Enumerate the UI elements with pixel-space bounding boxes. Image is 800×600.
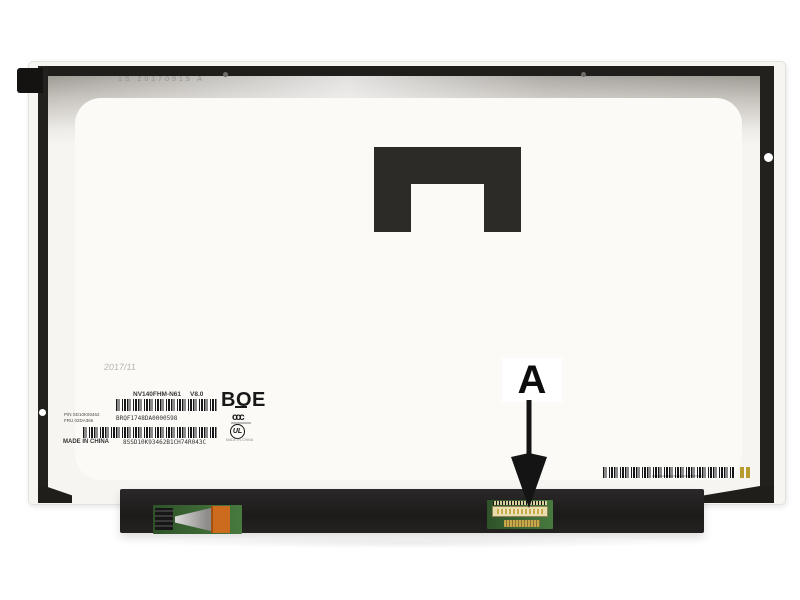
edge-notch-left	[39, 409, 46, 416]
fru-number: FRU 02DA366	[64, 418, 100, 424]
gold-mark-1	[740, 467, 744, 478]
ribbon-cable	[175, 507, 215, 532]
annotation-letter: A	[502, 358, 562, 402]
bracket-shape-top	[374, 147, 521, 184]
gold-mark-2	[746, 467, 750, 478]
barcode-edge-microtext	[652, 475, 702, 477]
screw-dot-left	[223, 72, 228, 77]
top-engraving-text: 1S 20170919 A	[118, 76, 205, 83]
frame-edge-right	[760, 66, 774, 500]
barcode-model	[116, 399, 217, 411]
model-number: NV140FHM-N61	[133, 391, 181, 398]
bar-shadow	[150, 537, 670, 549]
full-serial-text: 8SSD10K93462B1CH74R043C	[123, 439, 206, 446]
serial-number: BRQF1748DA0000598	[116, 415, 177, 422]
ul-made-in-text: MADE IN CHINA	[226, 438, 253, 442]
pn-fru-block: P/N SD10K93462 FRU 02DA366	[64, 412, 100, 424]
frame-edge-left	[38, 66, 48, 500]
flex-cable-orange	[211, 506, 230, 533]
ul-mark-icon: UL	[230, 424, 245, 439]
bracket-shape-right-leg	[484, 184, 521, 232]
pcb-components	[155, 508, 173, 530]
date-stamp: 2017/11	[103, 362, 136, 372]
barcode-serial	[83, 427, 217, 438]
edge-notch-right	[764, 153, 773, 162]
boe-logo: BOE	[221, 389, 266, 412]
made-in-text: MADE IN CHINA	[63, 439, 109, 446]
gold-contact-strip	[504, 520, 540, 527]
frame-edge-top	[38, 66, 774, 76]
label-bottom-row: MADE IN CHINA 8SSD10K93462B1CH74R043C	[63, 439, 206, 446]
bracket-shape-left-leg	[374, 184, 411, 232]
product-photo: 1S 20170919 A 2017/11 NV140FHM-N61 V8.0 …	[0, 0, 800, 600]
mounting-tab-left	[17, 68, 43, 93]
model-version: V8.0	[190, 391, 203, 398]
pcb-board-left	[153, 505, 242, 534]
down-arrow-icon	[505, 398, 555, 512]
boe-logo-underline	[235, 406, 247, 408]
screw-dot-right	[581, 72, 586, 77]
label-model-row: NV140FHM-N61 V8.0	[133, 391, 203, 398]
